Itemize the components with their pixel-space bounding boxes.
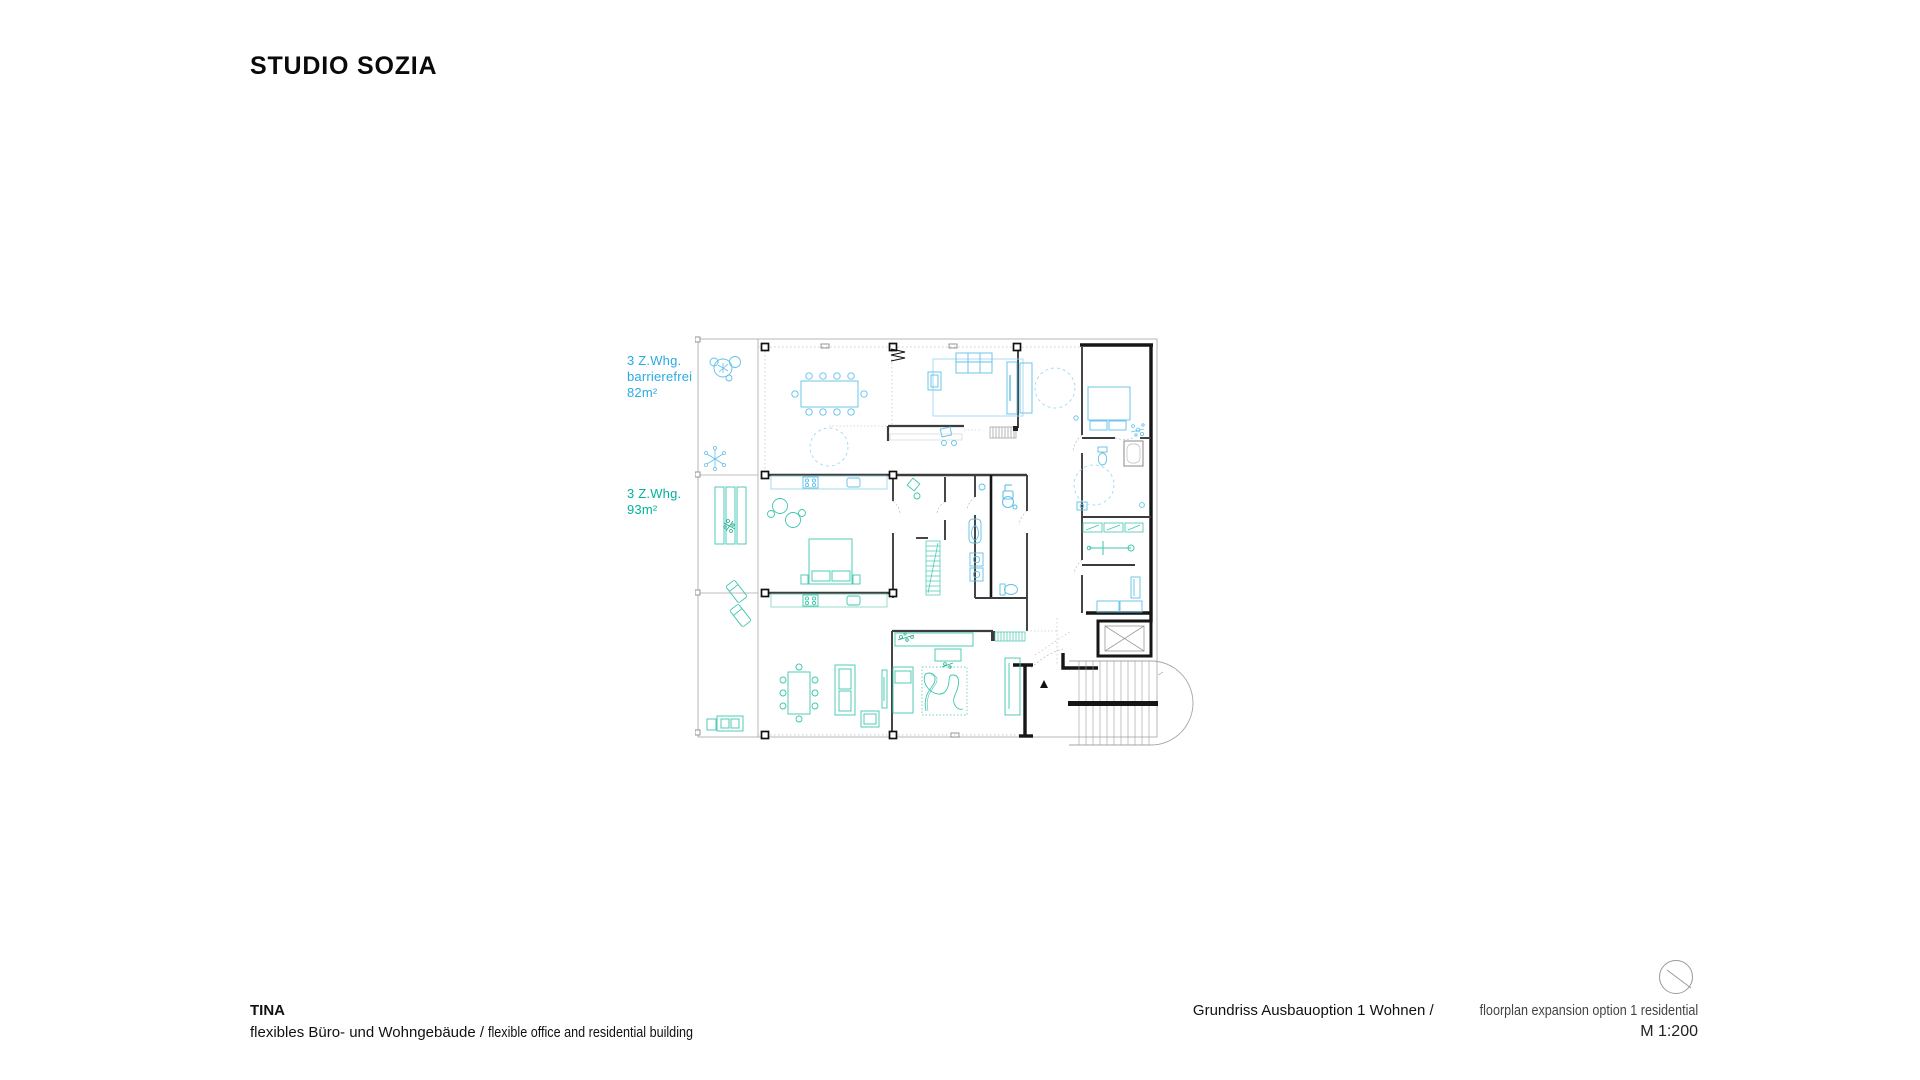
bench-right — [1097, 577, 1142, 612]
sofa-bottom — [835, 665, 855, 715]
sofa-group-upper — [928, 353, 1032, 416]
grid-lines — [758, 347, 1082, 735]
stair-handrail — [1068, 701, 1158, 706]
drawing-title: Grundriss Ausbauoption 1 Wohnen / floorp… — [1193, 1002, 1698, 1019]
apartment-label-82-line1: 3 Z.Whg. — [627, 353, 692, 369]
dotted-links — [829, 426, 1057, 631]
project-info: TINA flexibles Büro- und Wohngebäude / f… — [250, 1002, 732, 1041]
drawing-title-de: Grundriss Ausbauoption 1 Wohnen — [1193, 1002, 1425, 1019]
apartment-label-93-line2: 93m² — [627, 502, 681, 518]
dining-table-bottom — [780, 664, 818, 722]
apartment-label-82-line2: barrierefrei — [627, 369, 692, 385]
radiator-bottom — [995, 632, 1025, 641]
studio-logo: STUDIO SOZIA — [250, 52, 437, 81]
kitchen-middle — [771, 594, 887, 607]
drawing-info: Grundriss Ausbauoption 1 Wohnen / floorp… — [1193, 1002, 1698, 1041]
dining-table-upper — [792, 373, 867, 415]
project-title: TINA — [250, 1002, 732, 1019]
kitchen-upper — [771, 476, 887, 489]
bath-shelf-row — [1083, 523, 1143, 532]
wall-stub — [1013, 426, 1018, 431]
balcony-plant-mid — [705, 447, 726, 471]
balcony-plant-top — [710, 357, 741, 382]
apartment-label-82: 3 Z.Whg. barrierefrei 82m² — [627, 353, 692, 401]
exterior-walls — [1013, 344, 1153, 737]
chaise-wavy — [893, 667, 967, 715]
north-indicator-icon — [1653, 955, 1699, 1001]
wardrobe — [926, 541, 940, 595]
plant-scatter-blue — [1131, 424, 1144, 436]
bathroom-right-fixtures — [1077, 447, 1144, 510]
floor-plan — [695, 335, 1225, 765]
misc-gray-details — [829, 349, 1143, 631]
wheelchair-icon — [1003, 485, 1018, 509]
armchair-bottom — [861, 670, 887, 727]
apartment-label-82-line3: 82m² — [627, 385, 692, 401]
staircase — [1068, 661, 1193, 745]
core-bath-fixtures — [969, 484, 1018, 595]
floor-plan-drawing — [695, 335, 1225, 765]
bed-middle — [801, 539, 860, 584]
apartment-label-93-line1: 3 Z.Whg. — [627, 486, 681, 502]
project-subtitle-en: flexible office and residential building — [488, 1024, 693, 1041]
shower-cabin — [1124, 441, 1143, 466]
shower-rail — [1087, 541, 1134, 555]
sideboard-laptop — [940, 427, 956, 445]
elevator — [1098, 621, 1151, 656]
drawing-title-separator: / — [1425, 1002, 1438, 1019]
drawing-title-en: floorplan expansion option 1 residential — [1479, 1002, 1698, 1019]
project-subtitle-de: flexibles Büro- und Wohngebäude — [250, 1024, 476, 1041]
apartment-label-93: 3 Z.Whg. 93m² — [627, 486, 681, 518]
drawing-scale: M 1:200 — [1193, 1023, 1698, 1041]
subtitle-separator: / — [476, 1024, 489, 1041]
structural-columns — [762, 344, 1021, 739]
balcony-loungers — [726, 580, 752, 627]
balcony-shelves — [715, 487, 746, 544]
desk-middle — [907, 478, 920, 499]
armchairs-middle — [768, 499, 806, 528]
entrance-arrow-icon — [1040, 680, 1048, 688]
furniture-blue — [705, 353, 1145, 612]
balcony-desk — [707, 716, 743, 731]
project-subtitle: flexibles Büro- und Wohngebäude / flexib… — [250, 1024, 732, 1041]
furniture-teal — [707, 478, 1143, 731]
